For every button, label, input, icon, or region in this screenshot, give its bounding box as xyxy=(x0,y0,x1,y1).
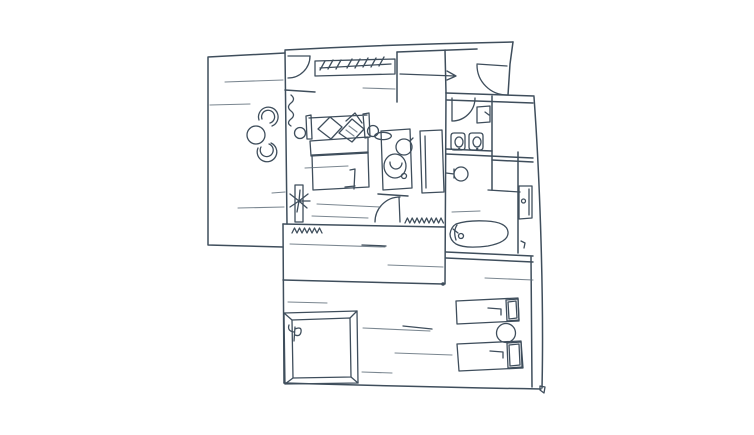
wc-cistern xyxy=(477,106,490,123)
balcony-sketch-line-1 xyxy=(225,80,283,82)
lower-sketch-line-1 xyxy=(288,302,327,303)
floor-plan-drawing xyxy=(0,0,754,435)
balcony-sketch-line-4 xyxy=(272,192,285,193)
bathroom-bottom-wall-2 xyxy=(446,258,533,262)
lower-sketch-line-3 xyxy=(395,353,452,355)
entry-closet-wall xyxy=(445,50,446,93)
bath-sketch-line xyxy=(452,211,480,212)
lounger-1-headrest xyxy=(506,299,519,321)
basin-2-dot xyxy=(476,148,478,150)
door-head-wall xyxy=(378,194,408,196)
corridor-wall-dot xyxy=(441,282,445,286)
bed-fold xyxy=(345,169,355,189)
hall-sketch-line-2 xyxy=(388,265,443,267)
hall-divider-line-2 xyxy=(492,160,533,162)
floor-plan-page xyxy=(0,0,754,435)
balcony-sketch-line-3 xyxy=(238,207,284,208)
bedroom-sketch-line-1 xyxy=(305,166,348,168)
plant xyxy=(290,190,310,212)
right-outer-wall xyxy=(534,97,543,388)
terrace-table xyxy=(497,324,516,343)
balcony-sketch-line-2 xyxy=(210,104,250,105)
lounger-2-headrest xyxy=(507,342,522,368)
console-fringe xyxy=(292,228,322,233)
bathroom-bottom-wall xyxy=(446,252,533,256)
wc-sink-round xyxy=(446,167,468,181)
bedroom-right-wall-top xyxy=(508,42,513,95)
lower-sketch-line-4 xyxy=(362,372,392,373)
bed-pillow-hatch xyxy=(346,126,357,136)
square-table-bevels xyxy=(284,311,358,384)
basin-1-dot xyxy=(458,148,460,150)
wall-stub-left xyxy=(285,90,315,92)
bed-pillow-1 xyxy=(318,117,342,139)
entrance-door-leaf xyxy=(477,64,507,66)
bedroom-top-wall-outer xyxy=(285,42,513,50)
wc-basin-1 xyxy=(451,133,465,150)
terrace-inner-wall xyxy=(531,257,532,387)
terrace-sketch-line xyxy=(485,278,533,280)
bed-body xyxy=(312,152,369,190)
wc-block-top-wall xyxy=(446,93,534,96)
bedroom-left-wall xyxy=(285,51,287,224)
right-wall-hook xyxy=(521,241,525,248)
square-table-sprout xyxy=(289,325,302,341)
bedroom-south-wall xyxy=(283,224,445,227)
bath-bench-line xyxy=(488,190,520,192)
bedroom-sketch-line-2 xyxy=(317,204,380,207)
lower-left-wall xyxy=(283,224,284,383)
corridor-sketch-line xyxy=(363,88,395,89)
square-table-outer xyxy=(284,311,358,384)
hall-divider-line xyxy=(446,154,533,158)
nightstand-left xyxy=(295,128,306,139)
lower-sketch-line-2b xyxy=(403,326,432,329)
vanity-soap-dish xyxy=(375,132,392,139)
wc-block-top-wall-inner xyxy=(447,100,533,103)
bedroom-sketch-line-3 xyxy=(312,216,368,218)
shower-curtain xyxy=(405,218,443,223)
bedroom-door-arc xyxy=(288,56,310,78)
entry-arrow xyxy=(400,71,456,80)
hall-door-leaf xyxy=(399,197,400,222)
lounger-1-mark xyxy=(488,308,501,315)
lounger-2 xyxy=(457,341,523,371)
square-table-inner xyxy=(292,318,351,378)
bedroom-top-wall-inner xyxy=(397,49,477,52)
lounger-2-mark xyxy=(490,351,503,358)
balcony-chair-1 xyxy=(259,107,279,126)
balcony-chair-2 xyxy=(257,143,277,162)
corridor-south-wall xyxy=(283,280,443,284)
hall-door-arc xyxy=(375,197,400,222)
wc-basin-2 xyxy=(469,133,483,150)
shower-stall xyxy=(420,130,444,193)
lower-sketch-line-2 xyxy=(363,328,430,331)
balcony-table xyxy=(247,126,265,144)
wing-left-wall xyxy=(445,93,446,284)
toilet-button xyxy=(402,174,407,179)
balcony-curtain xyxy=(289,95,294,126)
entrance-door-arc xyxy=(477,65,507,95)
right-wall-door-handle xyxy=(522,199,526,203)
